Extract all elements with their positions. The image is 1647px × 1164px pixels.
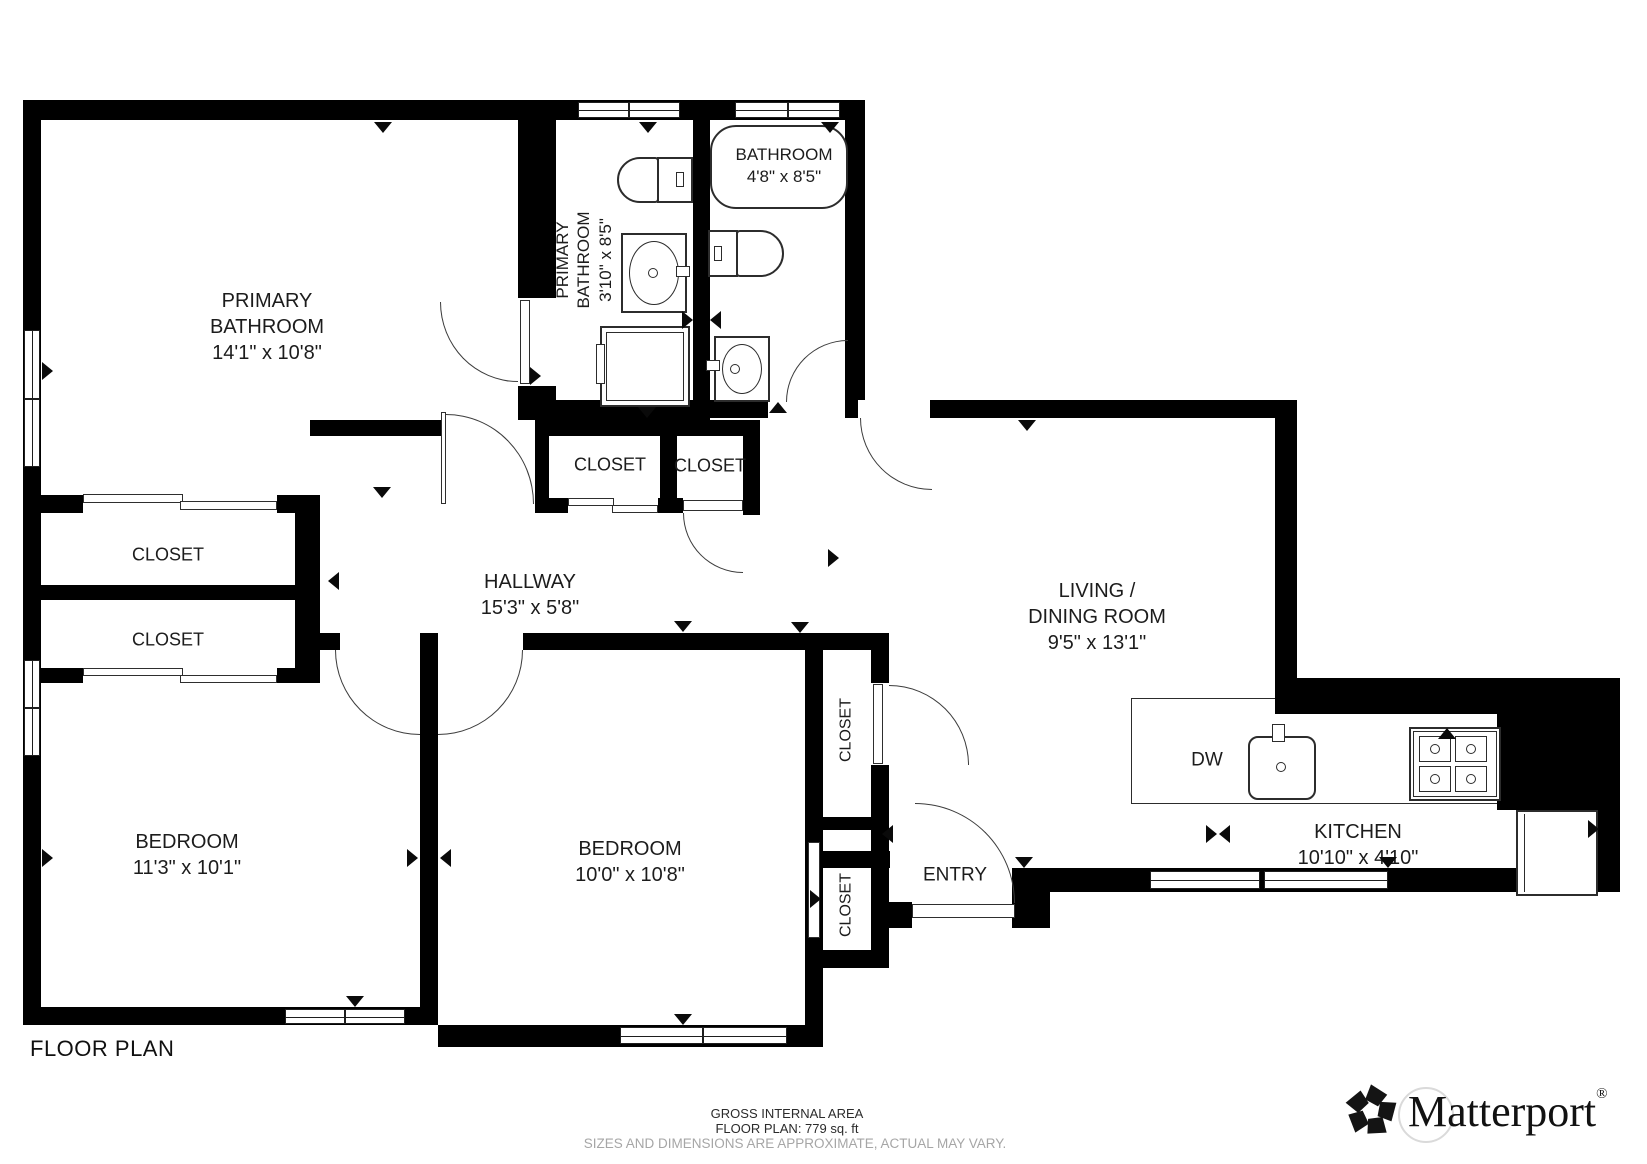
faucet-icon xyxy=(1272,724,1285,742)
wall xyxy=(535,498,568,513)
door-leaf xyxy=(683,500,743,511)
wall xyxy=(805,650,823,1025)
window xyxy=(285,1009,345,1024)
camera-marker-icon xyxy=(682,311,693,329)
burner-ring-icon xyxy=(1466,744,1476,754)
wall xyxy=(310,420,760,436)
camera-marker-icon xyxy=(346,996,364,1007)
camera-marker-icon xyxy=(674,1014,692,1025)
room-label-closet: CLOSET xyxy=(837,698,858,762)
room-label-hallway: HALLWAY 15'3" x 5'8" xyxy=(481,569,580,621)
room-name: DINING ROOM xyxy=(1028,604,1166,630)
room-label-primary-bedroom: PRIMARY BATHROOM 14'1" x 10'8" xyxy=(210,288,324,366)
room-dims: 10'0" x 10'8" xyxy=(575,862,685,888)
room-dims: 11'3" x 10'1" xyxy=(133,855,241,881)
room-name: CLOSET xyxy=(837,873,858,937)
wall xyxy=(310,633,340,650)
camera-marker-icon xyxy=(374,122,392,133)
window xyxy=(24,399,40,467)
burner-ring-icon xyxy=(1466,774,1476,784)
room-name: BATHROOM xyxy=(573,212,594,309)
wall xyxy=(23,495,83,513)
camera-marker-icon xyxy=(639,122,657,133)
faucet-icon xyxy=(676,266,690,277)
drain-icon xyxy=(648,268,658,278)
wall xyxy=(295,495,320,683)
room-name: CLOSET xyxy=(132,543,204,566)
camera-marker-icon xyxy=(407,849,418,867)
room-label-living-dining: LIVING / DINING ROOM 9'5" x 13'1" xyxy=(1028,578,1166,656)
room-label-entry: ENTRY xyxy=(923,864,987,889)
window xyxy=(578,102,629,118)
door-direction-marker-icon xyxy=(1206,825,1217,843)
toilet-flush-icon xyxy=(676,172,684,187)
sliding-door-panel xyxy=(568,498,614,506)
room-name: CLOSET xyxy=(574,453,646,476)
room-dims: 15'3" x 5'8" xyxy=(481,595,580,621)
room-dims: 3'10" x 8'5" xyxy=(595,212,616,309)
camera-marker-icon xyxy=(42,362,53,380)
burner-ring-icon xyxy=(1430,774,1440,784)
camera-marker-icon xyxy=(821,122,839,133)
camera-marker-icon xyxy=(769,402,787,413)
room-label-closet: CLOSET xyxy=(132,628,204,651)
shower-door-icon xyxy=(596,344,605,384)
window xyxy=(24,708,40,756)
floor-plan-title: FLOOR PLAN xyxy=(30,1036,174,1062)
drain-icon xyxy=(730,364,740,374)
door-swing-arc xyxy=(786,340,848,402)
wall xyxy=(849,851,890,868)
room-label-bathroom: BATHROOM 4'8" x 8'5" xyxy=(736,144,833,188)
room-name: LIVING / xyxy=(1028,578,1166,604)
room-name: PRIMARY xyxy=(552,212,573,309)
camera-marker-icon xyxy=(674,621,692,632)
camera-marker-icon xyxy=(791,622,809,633)
room-label-closet: CLOSET xyxy=(132,543,204,566)
disclaimer-text: SIZES AND DIMENSIONS ARE APPROXIMATE, AC… xyxy=(584,1136,1007,1151)
door-leaf xyxy=(912,904,1015,918)
toilet-tank-icon xyxy=(657,157,693,203)
burner-ring-icon xyxy=(1430,744,1440,754)
window xyxy=(345,1009,405,1024)
toilet-tank-icon xyxy=(708,230,738,277)
window xyxy=(1150,871,1260,889)
brand-name: Matterport® xyxy=(1408,1086,1608,1137)
room-name: ENTRY xyxy=(923,864,987,889)
matterport-logo: Matterport® xyxy=(1342,1082,1608,1140)
wall xyxy=(523,633,889,650)
door-gap xyxy=(858,400,930,418)
room-label-closet: CLOSET xyxy=(674,454,746,477)
camera-marker-icon xyxy=(42,849,53,867)
wall xyxy=(710,400,768,418)
sliding-door-panel xyxy=(180,501,277,510)
wall xyxy=(1275,400,1297,700)
room-name: HALLWAY xyxy=(481,569,580,595)
faucet-icon xyxy=(706,360,720,371)
window xyxy=(24,330,40,399)
room-dims: 10'10" x 4'10" xyxy=(1298,845,1419,871)
sliding-door-panel xyxy=(612,505,658,513)
door-swing-arc xyxy=(440,302,518,382)
wall xyxy=(1012,868,1050,928)
sliding-door-panel xyxy=(180,675,277,683)
wall xyxy=(871,765,889,817)
gross-area-label: GROSS INTERNAL AREA xyxy=(711,1106,864,1121)
registered-mark: ® xyxy=(1596,1086,1607,1102)
room-label-bedroom-left: BEDROOM 11'3" x 10'1" xyxy=(133,829,241,881)
wall xyxy=(871,650,889,683)
door-swing-arc xyxy=(438,650,523,735)
wall xyxy=(889,902,912,928)
camera-marker-icon xyxy=(328,572,339,590)
room-label-primary-bathroom: PRIMARY BATHROOM 3'10" x 8'5" xyxy=(552,212,616,309)
camera-marker-icon xyxy=(1015,857,1033,868)
door-swing-arc xyxy=(683,513,743,573)
room-dims: 14'1" x 10'8" xyxy=(210,340,324,366)
window xyxy=(629,102,680,118)
room-name: PRIMARY xyxy=(210,288,324,314)
drain-icon xyxy=(1276,762,1286,772)
room-label-kitchen: KITCHEN 10'10" x 4'10" xyxy=(1298,819,1419,871)
room-label-bedroom-mid: BEDROOM 10'0" x 10'8" xyxy=(575,836,685,888)
room-label-closet: CLOSET xyxy=(837,873,858,937)
room-name: CLOSET xyxy=(837,698,858,762)
shower-pan-icon xyxy=(606,332,684,401)
door-swing-arc xyxy=(889,685,969,765)
room-dims: 9'5" x 13'1" xyxy=(1028,630,1166,656)
door-direction-marker-icon xyxy=(1219,825,1230,843)
wall xyxy=(23,100,41,1025)
camera-marker-icon xyxy=(440,849,451,867)
room-name: CLOSET xyxy=(132,628,204,651)
wall xyxy=(277,668,310,683)
wall xyxy=(845,100,865,418)
window xyxy=(788,102,840,118)
camera-marker-icon xyxy=(1588,820,1599,838)
camera-marker-icon xyxy=(882,825,893,843)
window xyxy=(1264,871,1388,889)
wall xyxy=(658,498,683,513)
floor-plan-page: PRIMARY BATHROOM 14'1" x 10'8" PRIMARY B… xyxy=(0,0,1647,1164)
door-swing-arc xyxy=(860,418,932,490)
door-leaf xyxy=(520,300,530,384)
room-name: BEDROOM xyxy=(133,829,241,855)
room-name: BATHROOM xyxy=(210,314,324,340)
gross-area-value: FLOOR PLAN: 779 sq. ft xyxy=(715,1121,858,1136)
wall xyxy=(743,498,760,513)
camera-marker-icon xyxy=(1018,420,1036,431)
sliding-door-panel xyxy=(83,494,183,503)
room-name: BEDROOM xyxy=(575,836,685,862)
camera-marker-icon xyxy=(828,549,839,567)
room-name: CLOSET xyxy=(674,454,746,477)
camera-marker-icon xyxy=(373,487,391,498)
room-name: DW xyxy=(1191,749,1223,774)
room-dims: 4'8" x 8'5" xyxy=(736,166,833,188)
window xyxy=(24,660,40,708)
room-label-closet: CLOSET xyxy=(574,453,646,476)
sliding-door-panel xyxy=(83,668,183,676)
window xyxy=(703,1027,787,1044)
toilet-bowl-icon xyxy=(617,157,659,203)
fridge-icon xyxy=(1516,810,1598,896)
door-leaf xyxy=(873,684,883,764)
sink-basin-icon xyxy=(722,344,762,394)
camera-marker-icon xyxy=(1438,728,1456,739)
toilet-flush-icon xyxy=(714,246,722,261)
door-swing-arc xyxy=(335,650,420,735)
window xyxy=(735,102,788,118)
camera-marker-icon xyxy=(810,890,821,908)
camera-marker-icon xyxy=(710,311,721,329)
toilet-bowl-icon xyxy=(736,230,784,277)
camera-marker-icon xyxy=(638,407,656,418)
window xyxy=(620,1027,703,1044)
wall xyxy=(40,585,295,600)
room-name: KITCHEN xyxy=(1298,819,1419,845)
room-name: BATHROOM xyxy=(736,144,833,166)
dishwasher-label: DW xyxy=(1191,749,1223,774)
camera-marker-icon xyxy=(1379,857,1397,868)
wall xyxy=(1598,678,1620,892)
camera-marker-icon xyxy=(530,367,541,385)
matterport-pinwheel-icon xyxy=(1342,1082,1400,1140)
wall xyxy=(420,633,438,1025)
wall xyxy=(871,902,889,968)
